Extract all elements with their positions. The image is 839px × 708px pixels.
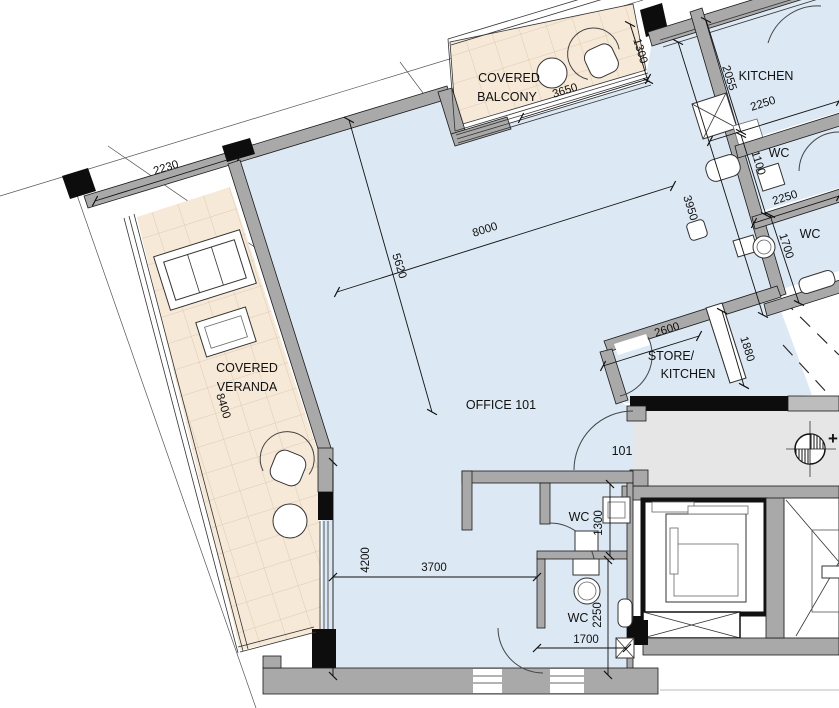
- wc-mid-label: WC: [569, 510, 590, 524]
- store-label-line2: KITCHEN: [661, 367, 716, 381]
- benchmark-plus: +: [828, 429, 838, 448]
- veranda-round-table: [273, 504, 307, 538]
- wc-top-a-label: WC: [769, 146, 790, 160]
- store-label-line1: STORE/: [648, 349, 695, 363]
- bottom-window-1: [473, 669, 502, 693]
- balcony-label-line1: COVERED: [478, 71, 540, 85]
- stair-shaft: [766, 498, 839, 638]
- balcony-label-line2: BALCONY: [477, 90, 537, 104]
- floor-plan-canvas: +: [0, 0, 839, 708]
- dim-3700: 3700: [421, 562, 447, 574]
- dim-1300-wc-mid: 1300: [593, 510, 605, 536]
- entrance-door-tag: 101: [612, 444, 633, 458]
- wc-bottom-label: WC: [568, 611, 589, 625]
- bottom-window-2: [550, 669, 584, 693]
- dim-1700-wc-bottom: 1700: [573, 634, 599, 646]
- shaft-x-box: [643, 612, 740, 638]
- floor-plan-drawing: +: [0, 0, 839, 708]
- wc-top-b-label: WC: [800, 227, 821, 241]
- dim-4200: 4200: [360, 547, 372, 573]
- veranda-label-line1: COVERED: [216, 361, 278, 375]
- dim-2250-wc-bottom: 2250: [592, 602, 604, 628]
- veranda-label-line2: VERANDA: [217, 380, 278, 394]
- kitchen-label: KITCHEN: [739, 69, 794, 83]
- balcony-round-table: [537, 58, 567, 88]
- elevator-shaft: [643, 500, 766, 614]
- office-label: OFFICE 101: [466, 398, 536, 412]
